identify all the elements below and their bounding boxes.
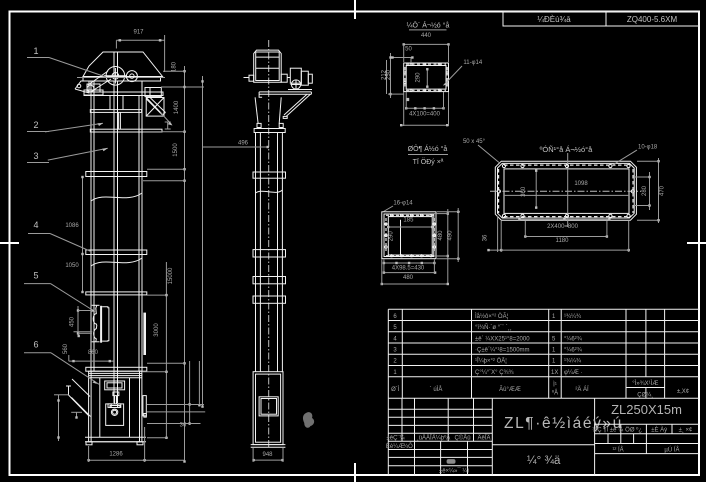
svg-text:±,X¢: ±,X¢ bbox=[677, 389, 689, 395]
svg-text:TÏ ÖÐý ×ª: TÏ ÖÐý ×ª bbox=[413, 158, 444, 166]
svg-text:1050: 1050 bbox=[65, 263, 79, 269]
svg-text:2: 2 bbox=[33, 120, 38, 130]
svg-text:1086: 1086 bbox=[65, 223, 79, 229]
svg-text:3000: 3000 bbox=[154, 323, 160, 337]
svg-text:470: 470 bbox=[660, 185, 666, 196]
svg-text:±È Àý: ±È Àý bbox=[651, 426, 667, 433]
svg-text:11-φ14: 11-φ14 bbox=[463, 60, 482, 66]
svg-text:Ø´Ì: Ø´Ì bbox=[391, 386, 400, 393]
svg-text:15000: 15000 bbox=[168, 267, 174, 284]
svg-text:450: 450 bbox=[70, 316, 76, 327]
svg-text:¼° ¾ä: ¼° ¾ä bbox=[527, 455, 561, 467]
svg-text:4X100=400: 4X100=400 bbox=[409, 111, 441, 117]
svg-text:¹Î¼þ×°² ÖÃ¦: ¹Î¼þ×°² ÖÃ¦ bbox=[475, 358, 507, 365]
svg-text:ÖØ º¿: ÖØ º¿ bbox=[625, 426, 642, 433]
svg-text:±ê´ ¼XX25¹°8=2000: ±ê´ ¼XX25¹°8=2000 bbox=[475, 336, 530, 342]
svg-text:Ç©Ãû: Ç©Ãû bbox=[454, 435, 470, 442]
svg-text:360: 360 bbox=[521, 186, 527, 197]
svg-text:1180: 1180 bbox=[556, 238, 570, 244]
svg-text:1286: 1286 bbox=[109, 452, 123, 458]
svg-text:Ì¹: Ì¹ bbox=[553, 382, 557, 389]
svg-text:6: 6 bbox=[33, 340, 38, 350]
svg-text:948: 948 bbox=[262, 452, 273, 458]
svg-text:1098: 1098 bbox=[574, 181, 588, 187]
svg-text:¾Ô: ¾Ô bbox=[403, 443, 413, 450]
svg-text:290: 290 bbox=[388, 231, 394, 242]
svg-text:1500: 1500 bbox=[173, 143, 179, 157]
svg-text:1X: 1X bbox=[551, 370, 558, 376]
svg-text:180: 180 bbox=[172, 61, 178, 72]
svg-text:ØÔ¶ Á½ó °å: ØÔ¶ Á½ó °å bbox=[408, 144, 448, 153]
svg-text:480: 480 bbox=[438, 230, 444, 241]
svg-text:5: 5 bbox=[33, 271, 38, 281]
svg-text:Ìå½ô×°² ÖÃ¦: Ìå½ô×°² ÖÃ¦ bbox=[475, 313, 509, 320]
svg-text:´ úÌÅ: ´ úÌÅ bbox=[430, 386, 443, 393]
svg-text:50: 50 bbox=[405, 47, 412, 53]
svg-text:¼Ô´ Á¬½ó °å: ¼Ô´ Á¬½ó °å bbox=[407, 21, 450, 30]
svg-text:¹¾¼¾: ¹¾¼¾ bbox=[564, 359, 582, 365]
svg-text:917: 917 bbox=[133, 30, 144, 36]
svg-text:Ãû°ÆÆ: Ãû°ÆÆ bbox=[499, 386, 521, 393]
svg-text:290: 290 bbox=[416, 72, 422, 83]
svg-text:2X400=800: 2X400=800 bbox=[547, 224, 579, 230]
svg-text:°Ì»¾X¹ÌÆ: °Ì»¾X¹ÌÆ bbox=[632, 380, 658, 387]
svg-text:·Ç±ê´¼°¹8=1500mm: ·Ç±ê´¼°¹8=1500mm bbox=[475, 348, 530, 354]
svg-text:½Ç ¶Î ±ê ¼: ½Ç ¶Î ±ê ¼ bbox=[592, 426, 624, 433]
svg-text:Éè¼Æ: Éè¼Æ bbox=[386, 443, 404, 450]
svg-text:¹¾¼¾: ¹¾¼¾ bbox=[564, 314, 582, 320]
svg-text:4: 4 bbox=[33, 220, 38, 230]
svg-text:4X98.5=430: 4X98.5=430 bbox=[392, 265, 425, 271]
svg-text:440: 440 bbox=[421, 33, 432, 39]
svg-text:¸üÄÄÎÄ¼þºÅ: ¸üÄÄÎÄ¼þºÅ bbox=[417, 435, 451, 442]
svg-text:280: 280 bbox=[642, 185, 648, 196]
svg-text:ÄêÎÄ: ÄêÎÄ bbox=[477, 435, 490, 442]
svg-text:185: 185 bbox=[403, 218, 414, 224]
svg-text:ºÅ: ºÅ bbox=[552, 390, 558, 397]
svg-text:860: 860 bbox=[88, 350, 99, 356]
svg-text:490: 490 bbox=[448, 230, 454, 241]
svg-text:°î¾Ñ·´ø °´¨ ´¸¸: °î¾Ñ·´ø °´¨ ´¸¸ bbox=[475, 324, 512, 331]
svg-text:¼ÐÈù¾ā: ¼ÐÈù¾ā bbox=[537, 15, 571, 24]
svg-text:φ¼Æ ·: φ¼Æ · bbox=[564, 370, 583, 376]
svg-text:250: 250 bbox=[386, 69, 392, 80]
svg-text:ZQ400-5.6XM: ZQ400-5.6XM bbox=[627, 15, 678, 24]
svg-text:ºÓÑ¹°å Á¬½ó°å: ºÓÑ¹°å Á¬½ó°å bbox=[540, 145, 594, 154]
svg-text:3: 3 bbox=[33, 151, 38, 161]
svg-text:16-φ14: 16-φ14 bbox=[393, 201, 413, 207]
svg-text:10-φ18: 10-φ18 bbox=[638, 144, 658, 150]
svg-text:50 x 45°: 50 x 45° bbox=[463, 139, 486, 145]
svg-text:ÇØ¼¸: ÇØ¼¸ bbox=[637, 392, 653, 398]
svg-text:°¼6²¾: °¼6²¾ bbox=[564, 336, 583, 342]
svg-text:ZL250X15m: ZL250X15m bbox=[611, 402, 682, 417]
svg-text:±¸ ×¢: ±¸ ×¢ bbox=[679, 427, 693, 433]
svg-text:µÚ ÍÅ: µÚ ÍÅ bbox=[664, 446, 679, 453]
svg-text:36: 36 bbox=[483, 234, 489, 241]
svg-text:560: 560 bbox=[63, 343, 69, 354]
svg-text:496: 496 bbox=[238, 141, 249, 147]
svg-text:¹² ÍÅ: ¹² ÍÅ bbox=[612, 446, 623, 453]
svg-text:1: 1 bbox=[33, 46, 38, 56]
svg-text:±êÇ¨¼: ±êÇ¨¼ bbox=[387, 436, 406, 442]
svg-text:°¼6²¾: °¼6²¾ bbox=[564, 348, 583, 354]
svg-text:1400: 1400 bbox=[174, 100, 180, 114]
svg-text:²Ä ÁÏ: ²Ä ÁÏ bbox=[575, 386, 589, 393]
svg-text:Ç°¼°¨X° Ç¾¾: Ç°¼°¨X° Ç¾¾ bbox=[475, 370, 515, 376]
svg-text:480: 480 bbox=[403, 275, 414, 281]
svg-text:±ê×¼»¯ ¼ì: ±ê×¼»¯ ¼ì bbox=[439, 468, 469, 475]
